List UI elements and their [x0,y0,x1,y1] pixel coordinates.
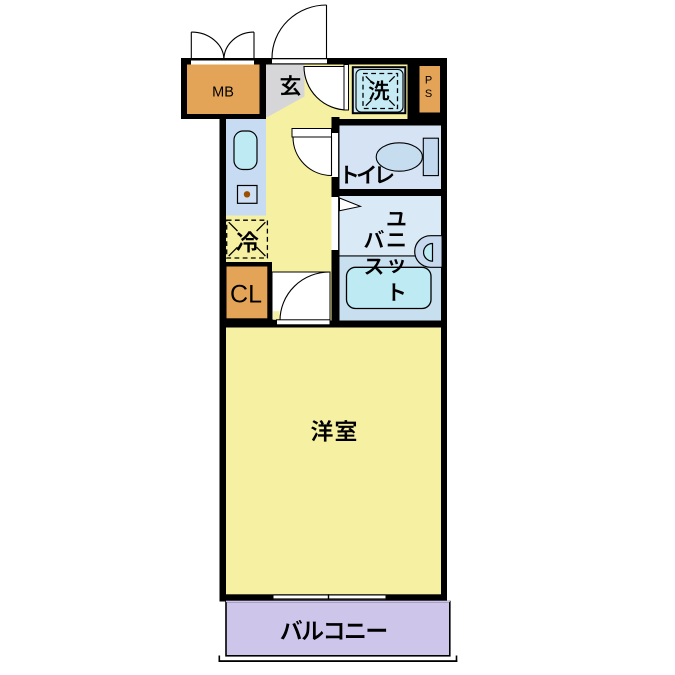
svg-text:MB: MB [212,85,234,101]
svg-text:CL: CL [230,281,262,309]
svg-text:P: P [425,75,432,87]
svg-text:S: S [425,88,432,100]
